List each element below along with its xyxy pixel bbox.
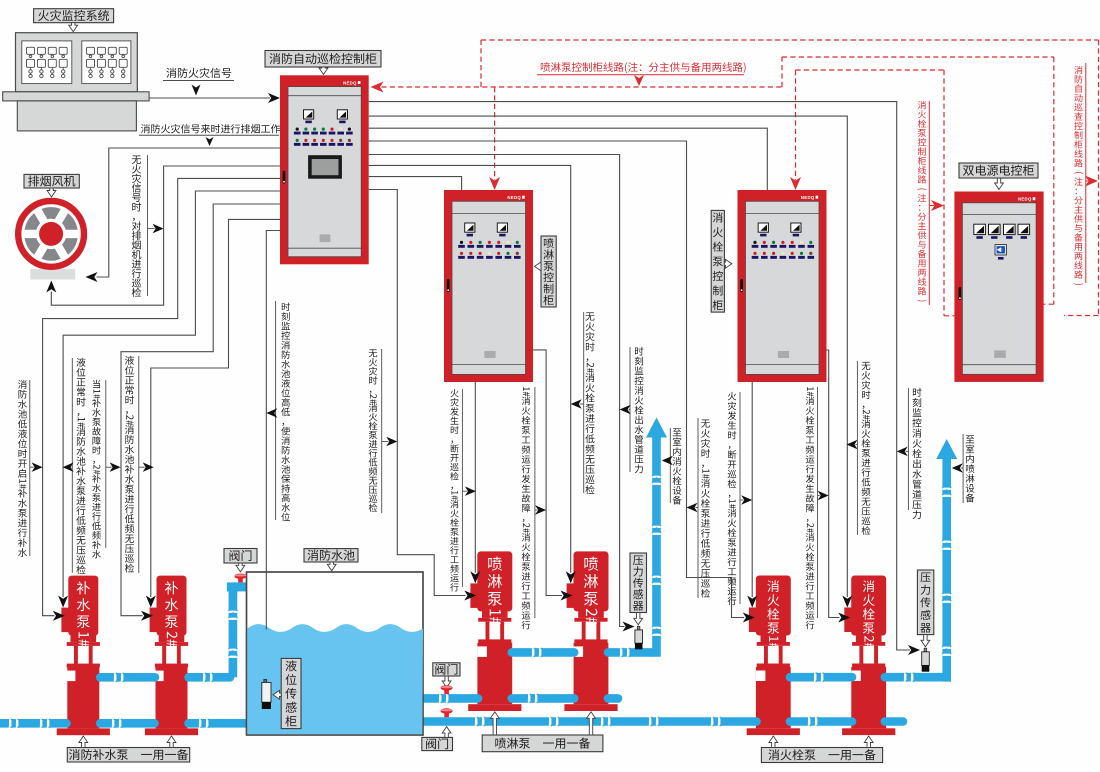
svg-text:NEDQ: NEDQ bbox=[801, 195, 815, 200]
svg-text:NEDQ: NEDQ bbox=[1018, 197, 1032, 202]
svg-text:NEDQ: NEDQ bbox=[507, 195, 521, 200]
svg-text:NEDQ: NEDQ bbox=[343, 80, 357, 85]
